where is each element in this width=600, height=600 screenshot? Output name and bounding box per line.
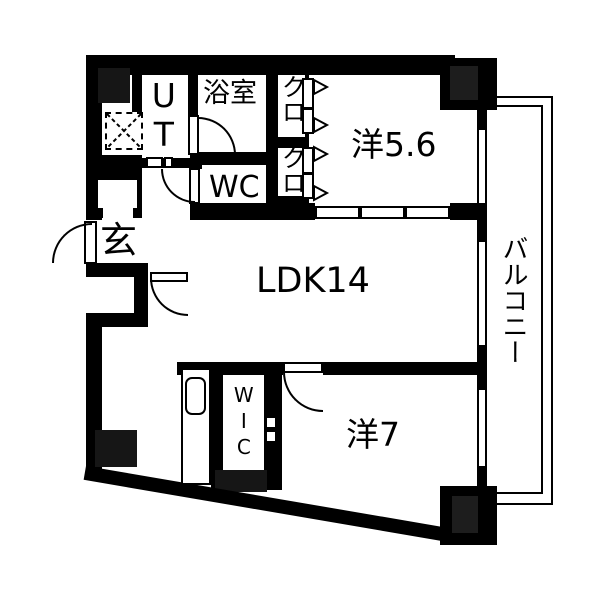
label-ldk: LDK14: [256, 263, 370, 299]
label-bedroom-second: 洋7: [346, 418, 400, 452]
label-utility: UT: [146, 76, 180, 154]
closet-door-triangle-4: [314, 186, 327, 200]
closet-door-triangle-1: [314, 80, 327, 94]
label-entrance: 玄: [100, 222, 137, 260]
label-toilet: WC: [209, 172, 260, 203]
label-closet-upper: クロ: [279, 74, 305, 124]
label-closet-lower: クロ: [279, 145, 305, 195]
closet-door-triangle-3: [314, 147, 327, 161]
label-bedroom-main: 洋5.6: [351, 128, 436, 162]
closet-door-triangle-2: [314, 118, 327, 132]
label-wic: WIC: [233, 383, 254, 461]
label-balcony: バルコニー: [499, 235, 526, 365]
floor-plan: 浴室 UT WC クロ クロ 洋5.6 LDK14 玄 WIC 洋7 バルコニー: [0, 0, 600, 600]
label-bathroom: 浴室: [203, 80, 257, 108]
